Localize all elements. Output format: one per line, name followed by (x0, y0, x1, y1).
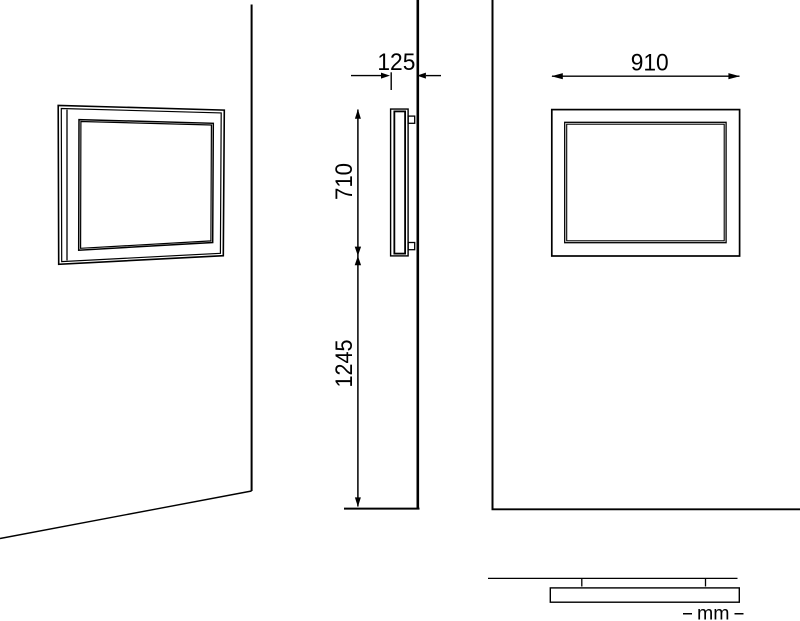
svg-text:910: 910 (631, 49, 669, 76)
svg-text:710: 710 (331, 163, 358, 200)
svg-text:1245: 1245 (331, 340, 358, 388)
svg-text:mm: mm (697, 603, 730, 621)
svg-text:125: 125 (377, 49, 415, 76)
